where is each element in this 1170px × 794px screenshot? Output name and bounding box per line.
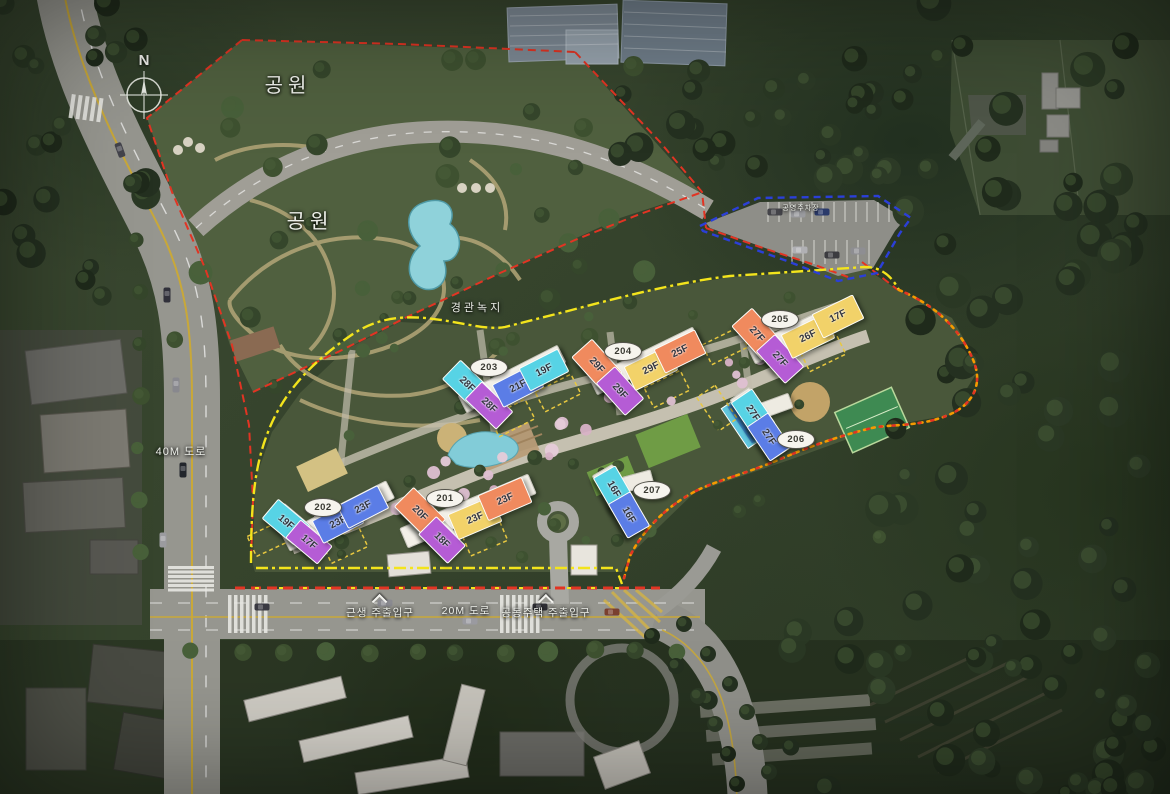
building-204-section: 25F	[653, 329, 706, 373]
building-number: 201	[436, 493, 453, 504]
building-number: 204	[614, 346, 631, 357]
building-202-badge: 202	[304, 498, 342, 517]
floor-count-label: 16F	[620, 505, 638, 525]
building-203-badge: 203	[470, 358, 508, 377]
building-206-badge: 206	[777, 430, 815, 449]
building-204-badge: 204	[604, 342, 642, 361]
building-number: 203	[480, 362, 497, 373]
building-number: 205	[771, 314, 788, 325]
building-205-section: 17F	[811, 294, 864, 338]
floor-count-label: 23F	[353, 498, 373, 516]
floor-count-label: 25F	[670, 342, 690, 359]
buildings-layer: 20F18F23F23F20119F17F23F23F20228F28F21F1…	[0, 0, 1170, 794]
floor-count-label: 29F	[641, 359, 661, 376]
floor-count-label: 27F	[747, 324, 767, 344]
building-number: 206	[787, 434, 804, 445]
floor-count-label: 27F	[760, 427, 779, 447]
building-201-section: 23F	[477, 477, 532, 522]
building-number: 202	[314, 502, 331, 513]
building-207-badge: 207	[633, 481, 671, 500]
building-201-badge: 201	[426, 489, 464, 508]
floor-count-label: 23F	[495, 491, 515, 508]
floor-count-label: 29F	[610, 381, 630, 401]
floor-count-label: 18F	[432, 530, 452, 550]
floor-count-label: 17F	[299, 532, 319, 552]
floor-count-label: 26F	[798, 327, 818, 344]
floor-count-label: 19F	[534, 361, 554, 379]
building-number: 207	[643, 485, 660, 496]
compass: N	[118, 52, 170, 126]
site-plan: 20F18F23F23F20119F17F23F23F20228F28F21F1…	[0, 0, 1170, 794]
floor-count-label: 27F	[770, 349, 790, 369]
floor-count-label: 23F	[465, 510, 485, 527]
floor-count-label: 29F	[587, 355, 607, 375]
building-205-badge: 205	[761, 310, 799, 329]
floor-count-label: 28F	[479, 395, 499, 415]
compass-north-label: N	[118, 52, 170, 69]
compass-icon	[118, 69, 170, 121]
floor-count-label: 20F	[410, 503, 430, 523]
floor-count-label: 17F	[828, 307, 848, 324]
